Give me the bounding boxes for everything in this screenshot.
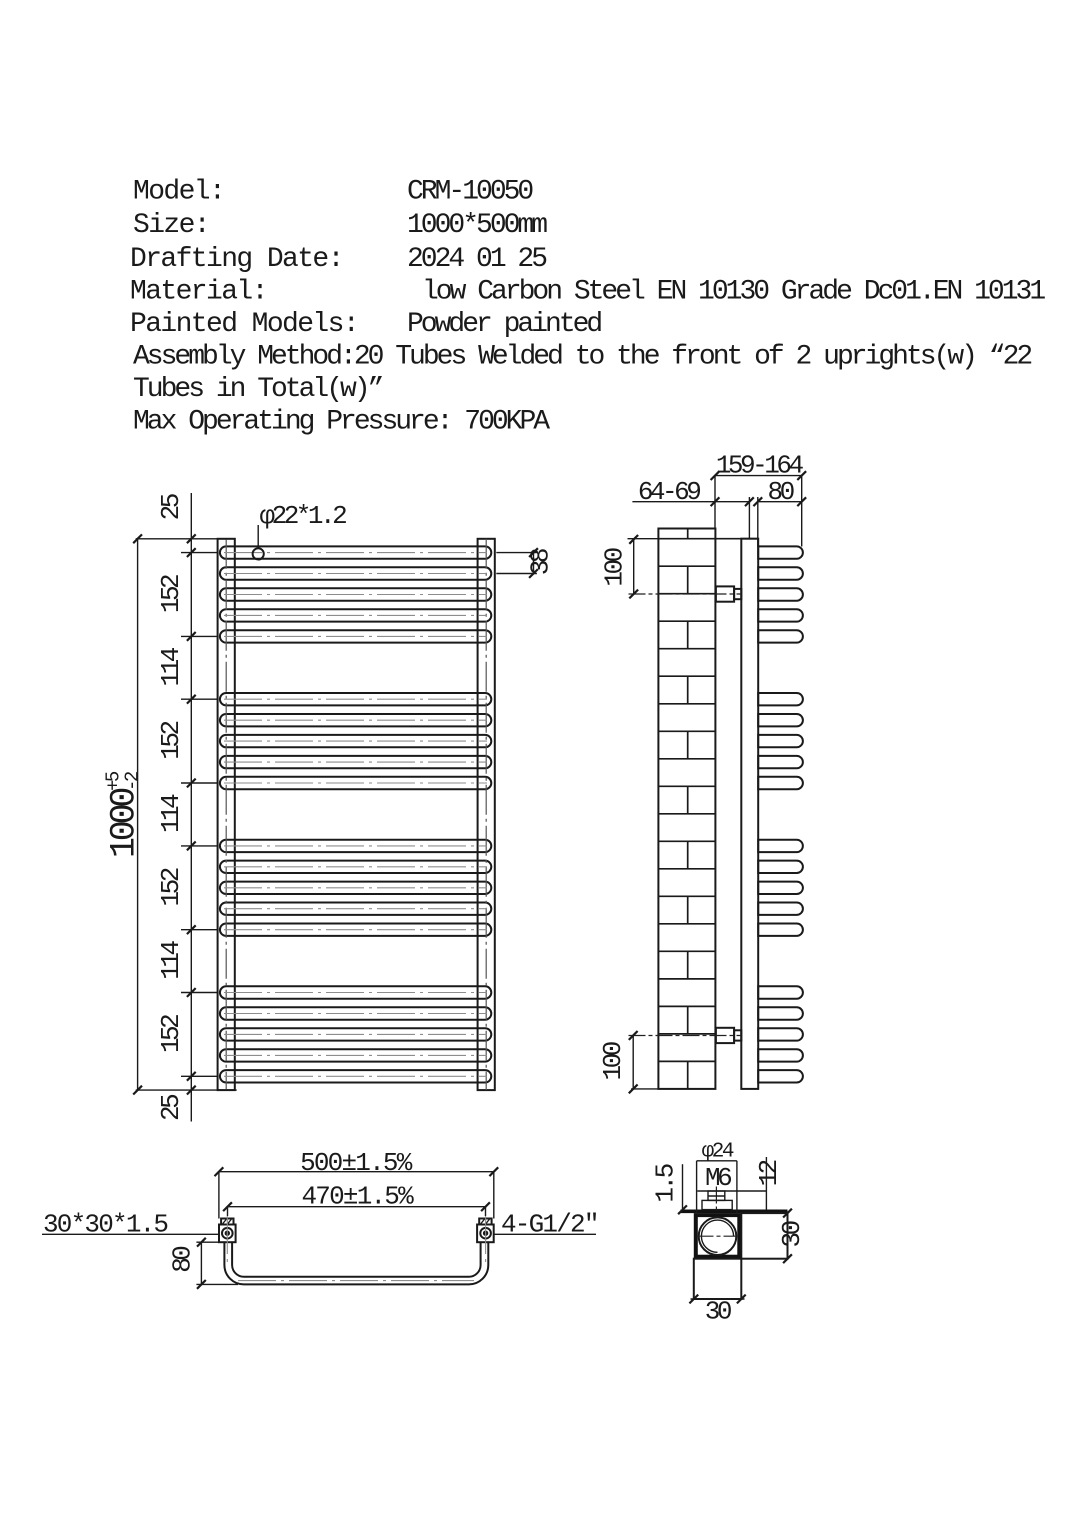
svg-text:80: 80: [767, 477, 793, 507]
svg-text:Powder painted: Powder painted: [407, 309, 601, 340]
svg-text:152: 152: [156, 575, 186, 613]
svg-text:2024 01 25: 2024 01 25: [407, 244, 547, 275]
svg-text:38: 38: [525, 549, 555, 575]
svg-text:25: 25: [156, 1095, 186, 1121]
svg-text:4-G1/2″: 4-G1/2″: [501, 1210, 598, 1240]
svg-text:low Carbon Steel EN 10130 Grad: low Carbon Steel EN 10130 Grade Dc01.EN …: [422, 277, 1045, 308]
svg-text:1.5: 1.5: [650, 1164, 680, 1202]
svg-text:Model:: Model:: [133, 177, 224, 208]
svg-text:Max Operating Pressure: 700KPA: Max Operating Pressure: 700KPA: [133, 407, 550, 438]
svg-text:114: 114: [156, 794, 186, 833]
svg-text:152: 152: [156, 1015, 186, 1053]
svg-text:30: 30: [705, 1297, 731, 1327]
svg-text:80: 80: [168, 1247, 198, 1273]
svg-text:φ24: φ24: [702, 1141, 734, 1164]
svg-text:Material:: Material:: [130, 277, 267, 308]
svg-text:φ22*1.2: φ22*1.2: [260, 501, 347, 531]
svg-text:64-69: 64-69: [638, 477, 700, 507]
svg-text:1000: 1000: [105, 789, 145, 858]
svg-text:Drafting Date:: Drafting Date:: [130, 244, 343, 275]
svg-text:-2: -2: [122, 771, 144, 791]
svg-text:Painted Models:: Painted Models:: [130, 309, 358, 340]
svg-text:100: 100: [598, 1042, 628, 1080]
svg-text:12: 12: [754, 1160, 784, 1186]
svg-text:Tubes in Total(w)”: Tubes in Total(w)”: [133, 374, 383, 405]
svg-text:30*30*1.5: 30*30*1.5: [43, 1210, 167, 1240]
svg-text:1000*500mm: 1000*500mm: [407, 210, 547, 241]
svg-text:470±1.5%: 470±1.5%: [301, 1181, 414, 1211]
svg-text:Size:: Size:: [133, 210, 209, 241]
svg-text:114: 114: [156, 647, 186, 686]
svg-text:25: 25: [156, 494, 186, 520]
svg-text:152: 152: [156, 868, 186, 906]
svg-text:500±1.5%: 500±1.5%: [300, 1148, 413, 1178]
svg-text:100: 100: [599, 548, 629, 586]
svg-text:152: 152: [156, 722, 186, 760]
svg-text:114: 114: [156, 941, 186, 980]
svg-text:30: 30: [777, 1221, 807, 1247]
svg-text:CRM-10050: CRM-10050: [407, 177, 533, 208]
svg-text:M6: M6: [705, 1163, 731, 1193]
svg-text:Assembly Method:20 Tubes Welde: Assembly Method:20 Tubes Welded to the f…: [133, 341, 1031, 372]
